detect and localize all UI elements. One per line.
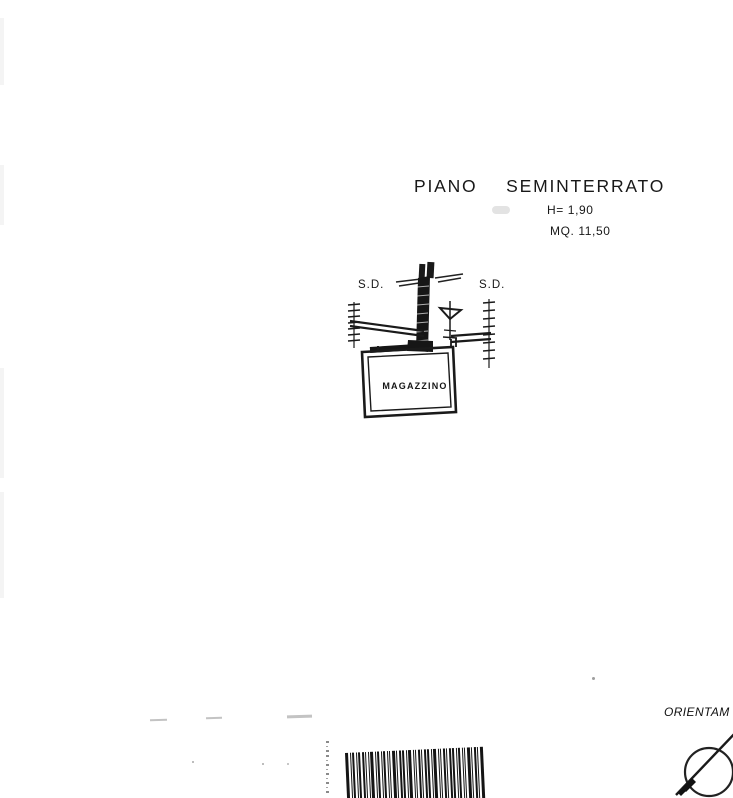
scanned-floorplan-page: PIANO SEMINTERRATO H= 1,90 MQ. 11,50 S.D… (0, 0, 733, 798)
scan-edge-artifact (0, 165, 4, 225)
barcode-bar (479, 747, 485, 798)
ceiling-height-label: H= 1,90 (547, 203, 594, 217)
floorplan-drawing: S.D. S.D. (345, 255, 515, 435)
left-wall (350, 321, 424, 336)
compass-icon (660, 726, 733, 798)
scan-speck (192, 761, 194, 763)
door-label-right: S.D. (479, 279, 505, 291)
stair-wall (407, 262, 434, 352)
door-label-left: S.D. (358, 279, 384, 291)
scan-dash (287, 715, 312, 719)
scan-edge-artifact (0, 18, 4, 85)
stair-arrow-symbol (440, 301, 461, 340)
scan-edge-artifact (0, 492, 4, 598)
barcode (345, 747, 490, 798)
room-label: MAGAZZINO (382, 381, 447, 391)
scan-speck (287, 763, 289, 765)
barcode-side-microtext (325, 741, 329, 793)
scan-smudge (492, 206, 510, 214)
wall-hatch-left (348, 302, 360, 348)
scan-speck (592, 677, 595, 680)
area-label: MQ. 11,50 (550, 224, 611, 238)
scan-speck (262, 763, 264, 765)
room-magazzino: MAGAZZINO (362, 346, 456, 417)
scan-dash (150, 719, 167, 722)
scan-edge-artifact (0, 368, 4, 478)
orientation-label: ORIENTAM (664, 705, 730, 719)
page-title: PIANO SEMINTERRATO (414, 176, 665, 197)
scan-dash (206, 717, 222, 720)
